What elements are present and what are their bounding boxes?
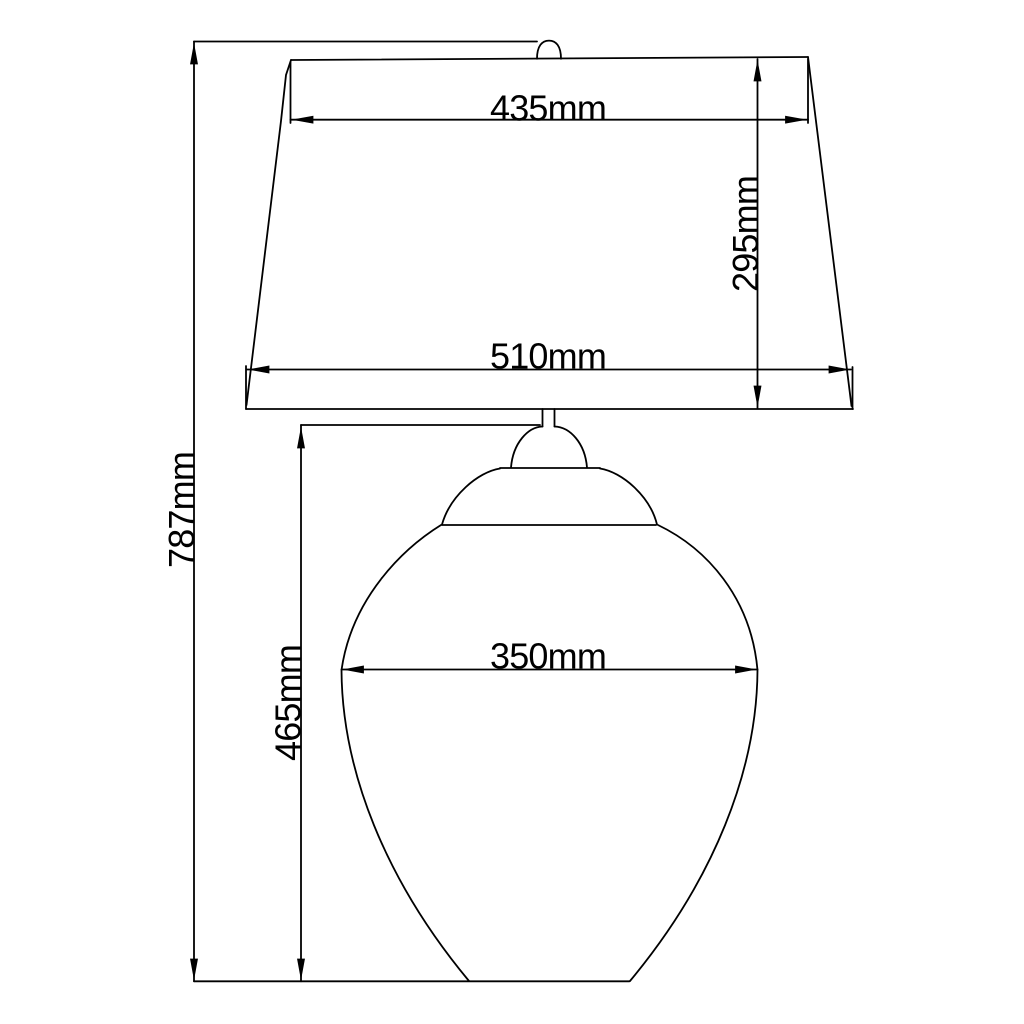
svg-text:435mm: 435mm [490, 88, 606, 129]
svg-text:350mm: 350mm [490, 636, 606, 677]
svg-text:787mm: 787mm [161, 452, 202, 568]
svg-text:465mm: 465mm [268, 645, 309, 761]
svg-text:295mm: 295mm [725, 176, 766, 292]
svg-text:510mm: 510mm [490, 336, 606, 377]
